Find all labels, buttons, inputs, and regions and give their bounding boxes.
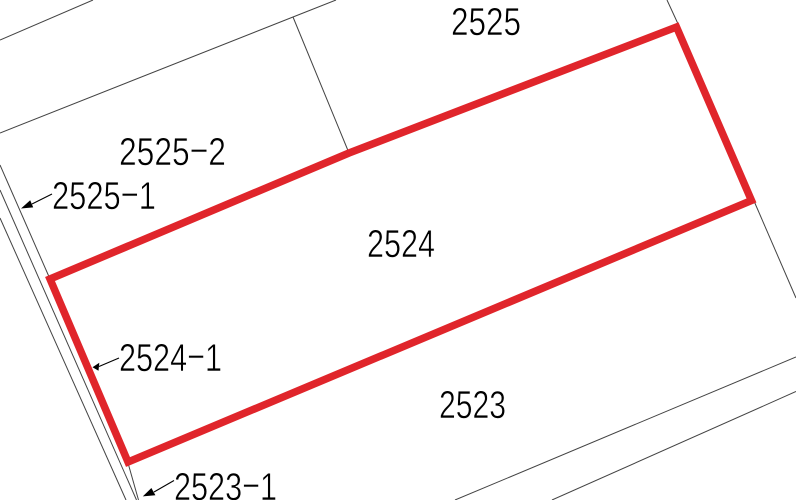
svg-text:2525−2: 2525−2 xyxy=(119,130,226,175)
svg-text:2524−1: 2524−1 xyxy=(119,336,222,381)
svg-text:2523: 2523 xyxy=(439,384,506,427)
svg-text:2525−1: 2525−1 xyxy=(52,174,156,219)
svg-text:2523−1: 2523−1 xyxy=(174,465,277,500)
svg-text:2524: 2524 xyxy=(367,223,435,266)
svg-text:2525: 2525 xyxy=(451,1,521,44)
